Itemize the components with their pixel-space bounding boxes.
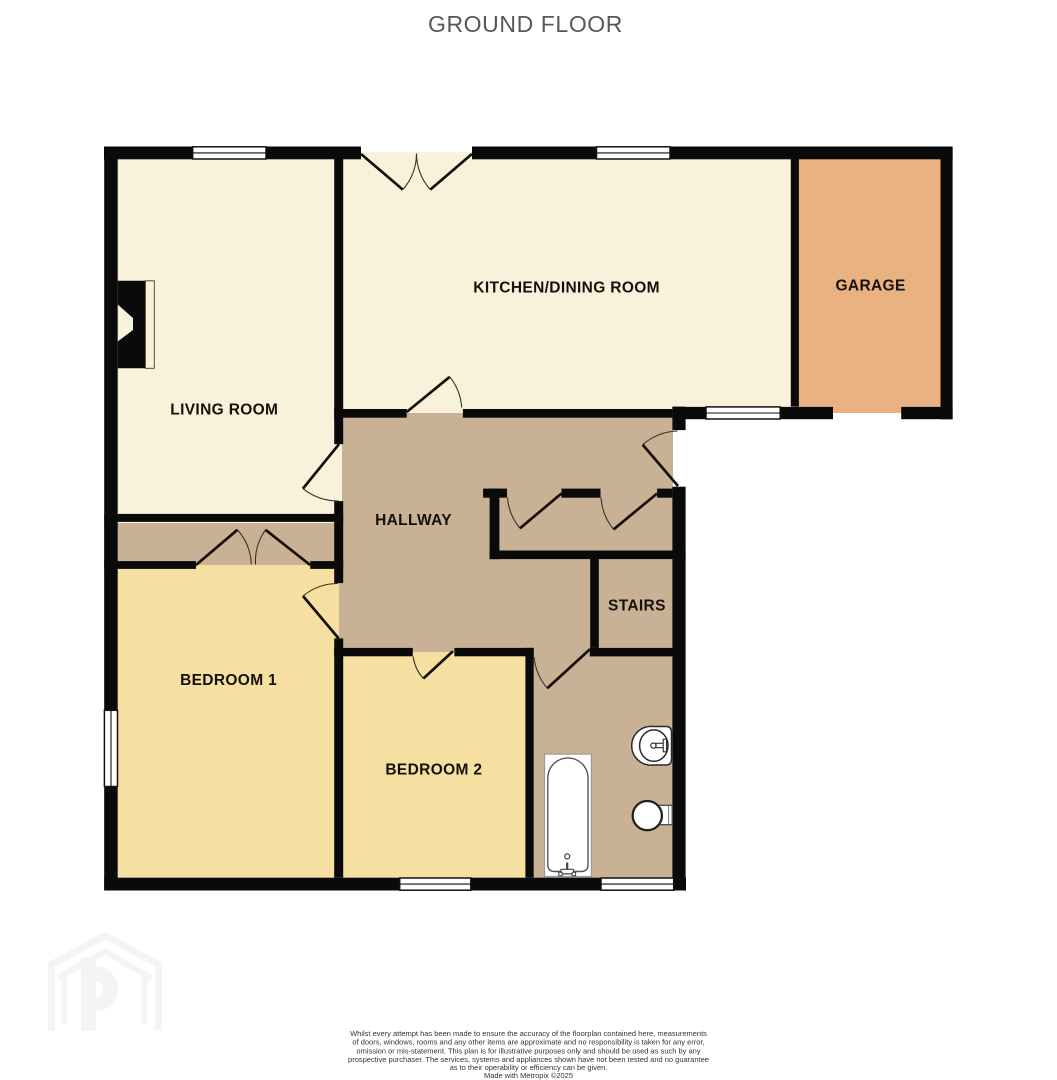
svg-text:KITCHEN/DINING ROOM: KITCHEN/DINING ROOM — [473, 280, 660, 297]
svg-text:GROUND FLOOR: GROUND FLOOR — [428, 11, 623, 37]
svg-text:Whilst every attempt has been: Whilst every attempt has been made to en… — [350, 1029, 707, 1038]
svg-text:BEDROOM 2: BEDROOM 2 — [385, 762, 482, 779]
svg-text:GARAGE: GARAGE — [836, 277, 906, 294]
svg-text:STAIRS: STAIRS — [608, 597, 666, 614]
svg-text:of doors, windows, rooms and a: of doors, windows, rooms and any other i… — [352, 1038, 704, 1047]
svg-text:LIVING ROOM: LIVING ROOM — [170, 402, 278, 419]
svg-text:Made with Metropix ©2025: Made with Metropix ©2025 — [484, 1071, 573, 1080]
svg-text:BEDROOM 1: BEDROOM 1 — [180, 672, 277, 689]
svg-text:HALLWAY: HALLWAY — [375, 512, 452, 529]
